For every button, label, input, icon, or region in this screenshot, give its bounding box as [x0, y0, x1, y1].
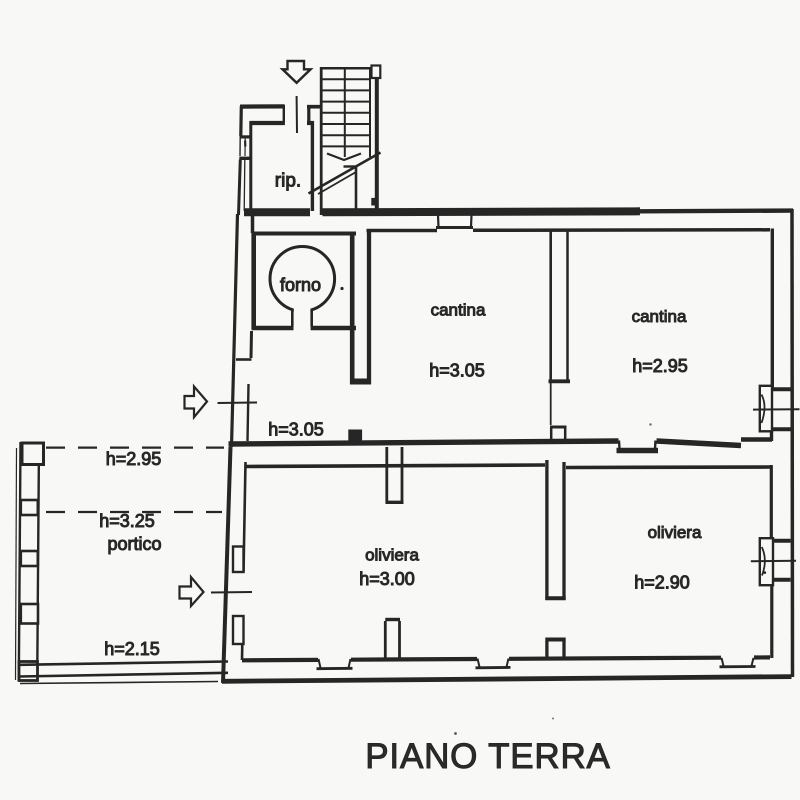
svg-text:cantina: cantina [632, 307, 687, 326]
svg-text:h=3.00: h=3.00 [359, 569, 415, 589]
svg-text:PIANO TERRA: PIANO TERRA [365, 737, 610, 776]
svg-text:oliviera: oliviera [365, 546, 419, 565]
svg-text:rip.: rip. [275, 171, 301, 192]
svg-text:cantina: cantina [431, 301, 486, 320]
svg-text:h=2.90: h=2.90 [634, 573, 690, 593]
svg-text:oliviera: oliviera [648, 523, 702, 542]
svg-text:h=3.05: h=3.05 [268, 420, 324, 440]
svg-text:h=3.25: h=3.25 [99, 511, 155, 531]
svg-text:h=2.15: h=2.15 [104, 639, 160, 659]
svg-text:h=2.95: h=2.95 [106, 449, 162, 469]
svg-text:h=3.05: h=3.05 [429, 361, 485, 381]
svg-text:h=2.95: h=2.95 [632, 356, 688, 376]
svg-text:portico: portico [107, 534, 161, 554]
svg-text:forno: forno [280, 275, 321, 295]
